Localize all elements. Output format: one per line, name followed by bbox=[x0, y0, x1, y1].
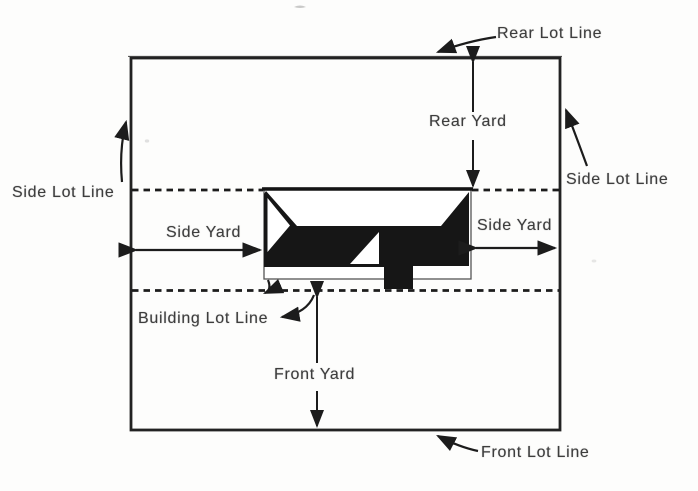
lot-diagram: Rear Lot Line Side Lot Line Side Lot Lin… bbox=[0, 0, 698, 491]
front-lot-line-arrow bbox=[438, 436, 478, 451]
front-lot-line-label: Front Lot Line bbox=[481, 444, 590, 462]
side-lot-line-left-arrow bbox=[121, 122, 126, 182]
rear-lot-line-arrow bbox=[438, 37, 496, 52]
building-lot-line-arrow bbox=[282, 295, 314, 317]
side-yard-left-label: Side Yard bbox=[166, 224, 241, 242]
lot-diagram-drawing bbox=[0, 0, 698, 491]
side-lot-line-left-label: Side Lot Line bbox=[12, 184, 115, 202]
building-footprint bbox=[262, 188, 473, 289]
front-yard-label: Front Yard bbox=[272, 366, 357, 384]
rear-yard-label: Rear Yard bbox=[427, 113, 509, 131]
side-yard-right-label: Side Yard bbox=[477, 217, 552, 235]
building-corner-arrow bbox=[265, 280, 269, 293]
side-lot-line-right-arrow bbox=[566, 110, 587, 166]
rear-lot-line-label: Rear Lot Line bbox=[497, 25, 602, 43]
building-lot-line-label: Building Lot Line bbox=[138, 310, 268, 328]
side-lot-line-right-label: Side Lot Line bbox=[566, 171, 669, 189]
